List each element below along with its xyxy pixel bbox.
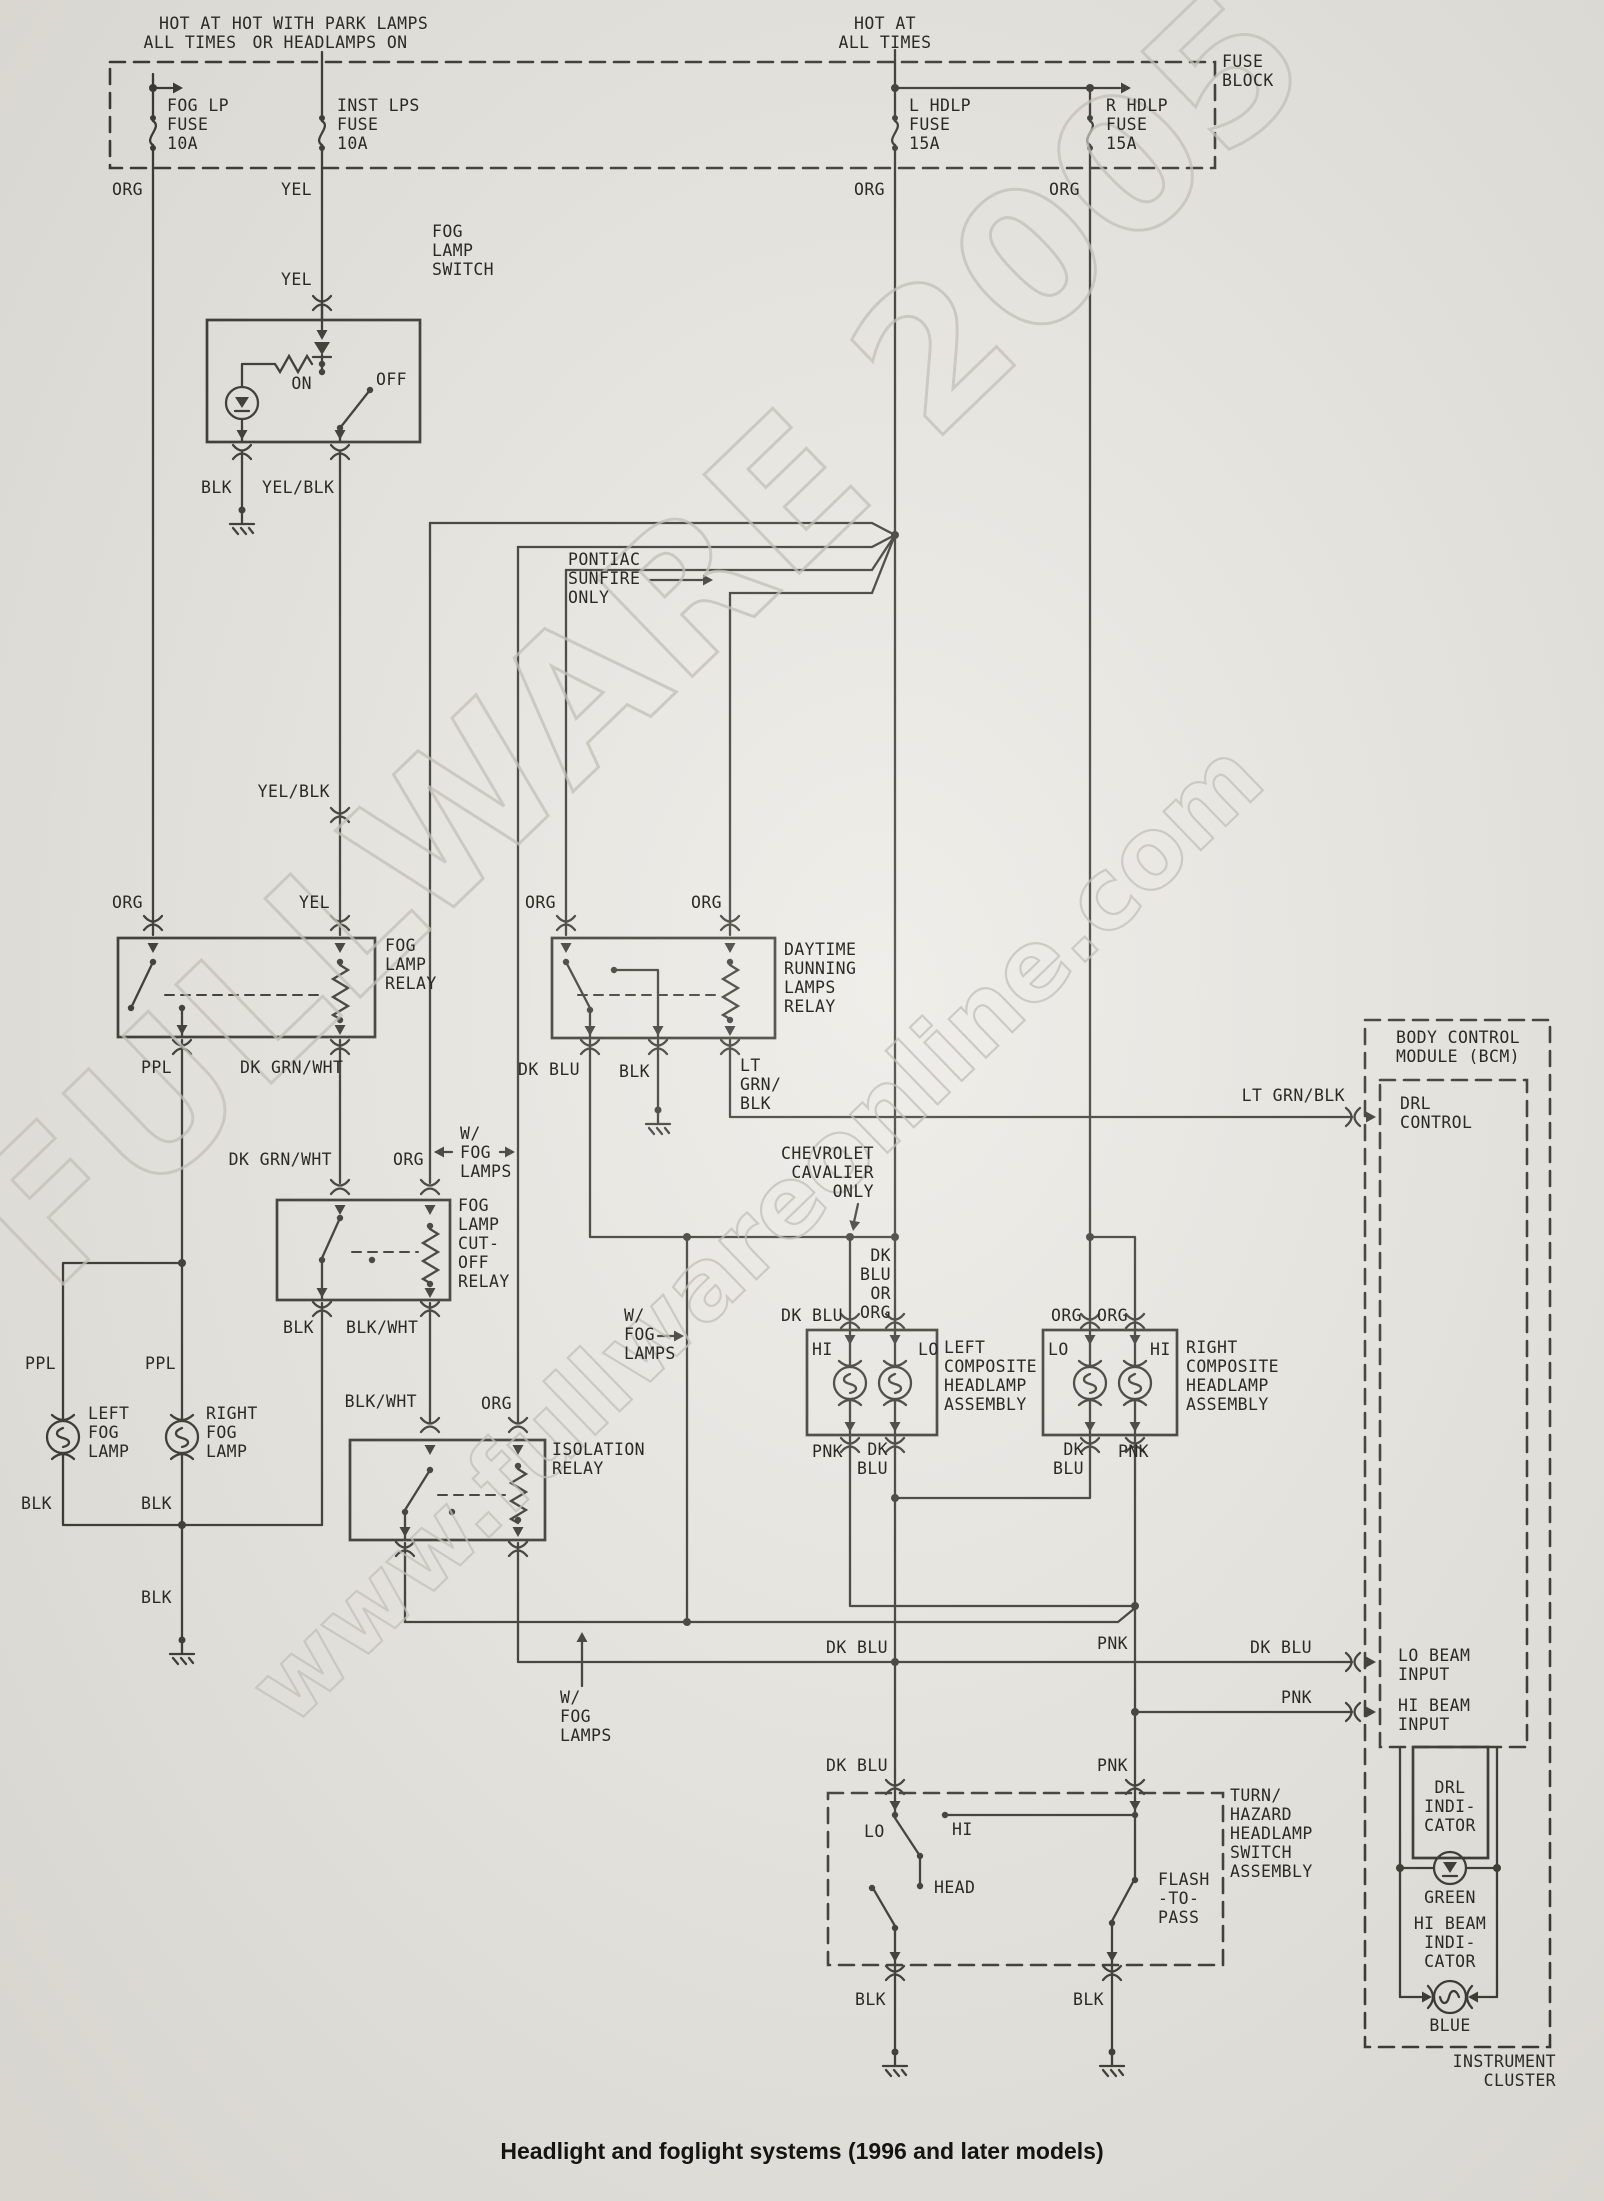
label-lt-grn-blk: LT GRN/BLK — [1242, 1086, 1345, 1105]
label-pnk: PNK — [1281, 1688, 1312, 1707]
label-yel-blk: YEL/BLK — [262, 478, 334, 497]
label-left: LEFT COMPOSITE HEADLAMP ASSEMBLY — [944, 1338, 1037, 1414]
label-blk: BLK — [283, 1318, 314, 1337]
label-blk: BLK — [141, 1494, 172, 1513]
label-right: RIGHT COMPOSITE HEADLAMP ASSEMBLY — [1186, 1338, 1279, 1414]
label-dk-blu: DK BLU — [781, 1306, 843, 1325]
label-lo: LO — [864, 1822, 885, 1841]
label-dk-grn-wht: DK GRN/WHT — [240, 1058, 343, 1077]
label-fog: FOG LAMP CUT- OFF RELAY — [458, 1196, 510, 1291]
left-lo-beam-bulb — [879, 1361, 911, 1405]
label-left: LEFT FOG LAMP — [88, 1404, 129, 1461]
label-fog: FOG LAMP RELAY — [385, 936, 437, 993]
label-hi-beam: HI BEAM INPUT — [1398, 1696, 1470, 1734]
label-w: W/ FOG LAMPS — [460, 1124, 512, 1181]
label-hot-at: HOT AT ALL TIMES — [838, 14, 931, 52]
label-org: ORG — [1049, 180, 1080, 199]
label-blk: BLK — [141, 1588, 172, 1607]
switch-assembly-wiring — [874, 1815, 1135, 2050]
daytime-running-lamps-relay — [552, 938, 775, 1038]
label-lt: LT GRN/ BLK — [740, 1056, 781, 1113]
label-dk-blu: DK BLU — [1250, 1638, 1312, 1657]
label-ppl: PPL — [145, 1354, 176, 1373]
switch-illumination-led — [226, 387, 258, 419]
label-hi: HI — [1150, 1340, 1171, 1359]
hi-beam-indicator-bulb — [1428, 1981, 1472, 2013]
label-l-hdlp: L HDLP FUSE 15A — [909, 96, 971, 153]
right-hi-beam-bulb — [1119, 1361, 1151, 1405]
label-right: RIGHT FOG LAMP — [206, 1404, 258, 1461]
label-w: W/ FOG LAMPS — [624, 1306, 676, 1363]
label-dk-grn-wht: DK GRN/WHT — [229, 1150, 332, 1169]
label-blk-wht: BLK/WHT — [346, 1318, 418, 1337]
label-yel-blk: YEL/BLK — [258, 782, 330, 801]
label-org: ORG — [112, 180, 143, 199]
label-flash: FLASH -TO- PASS — [1158, 1870, 1210, 1927]
label-w: W/ FOG LAMPS — [560, 1688, 612, 1745]
label-body-control: BODY CONTROL MODULE (BCM) — [1396, 1028, 1520, 1066]
label-on: ON — [291, 374, 312, 393]
diagram-caption: Headlight and foglight systems (1996 and… — [0, 2138, 1604, 2165]
label-org: ORG — [854, 180, 885, 199]
label-lo: LO — [1048, 1340, 1069, 1359]
label-pnk: PNK — [1097, 1634, 1128, 1653]
label-org: ORG — [112, 893, 143, 912]
schematic-svg — [0, 0, 1604, 2201]
left-fog-lamp-bulb — [47, 1415, 79, 1459]
label-blk-wht: BLK/WHT — [345, 1392, 417, 1411]
ground-symbols — [170, 507, 1124, 2077]
isolation-relay — [350, 1440, 545, 1540]
label-isolation: ISOLATION RELAY — [552, 1440, 645, 1478]
lamp-symbols — [47, 387, 1472, 2013]
label-org: ORG — [1051, 1306, 1082, 1325]
label-pnk: PNK — [812, 1442, 843, 1461]
label-yel: YEL — [281, 270, 312, 289]
label-blue: BLUE — [1429, 2016, 1470, 2035]
power-feed-wires — [153, 50, 1120, 1423]
label-instrument: INSTRUMENT CLUSTER — [1453, 2052, 1556, 2090]
label-off: OFF — [376, 370, 407, 389]
label-dk: DK BLU — [1053, 1440, 1084, 1478]
label-pnk: PNK — [1118, 1442, 1149, 1461]
label-lo: LO — [918, 1340, 939, 1359]
label-r-hdlp: R HDLP FUSE 15A — [1106, 96, 1168, 153]
label-pnk: PNK — [1097, 1756, 1128, 1775]
label-hi: HI — [812, 1340, 833, 1359]
label-fuse: FUSE BLOCK — [1222, 52, 1274, 90]
label-head: HEAD — [934, 1878, 975, 1897]
fog-lamp-cut-off-relay — [277, 1200, 450, 1300]
label-daytime: DAYTIME RUNNING LAMPS RELAY — [784, 940, 856, 1016]
label-chevrolet: CHEVROLET CAVALIER ONLY — [781, 1144, 874, 1201]
fog-lamp-relay — [118, 938, 375, 1037]
fuse-block — [110, 62, 1215, 168]
label-hot-at: HOT AT ALL TIMES — [143, 14, 236, 52]
label-fog-lp: FOG LP FUSE 10A — [167, 96, 229, 153]
cut-off-relay-wiring — [322, 1218, 430, 1525]
label-inst-lps: INST LPS FUSE 10A — [337, 96, 420, 153]
label-dk: DK BLU OR ORG — [860, 1246, 891, 1322]
scanned-wiring-diagram-page: FULLWARE 2005 www.fullwareonline.com — [0, 0, 1604, 2201]
label-hi-beam: HI BEAM INDI- CATOR — [1414, 1914, 1486, 1971]
label-org: ORG — [691, 893, 722, 912]
label-green: GREEN — [1424, 1888, 1476, 1907]
label-org: ORG — [1097, 1306, 1128, 1325]
label-ppl: PPL — [25, 1354, 56, 1373]
label-yel: YEL — [281, 180, 312, 199]
right-lo-beam-bulb — [1074, 1361, 1106, 1405]
label-org: ORG — [481, 1394, 512, 1413]
label-blk: BLK — [855, 1990, 886, 2009]
label-hot-with-park-lamps: HOT WITH PARK LAMPS OR HEADLAMPS ON — [232, 14, 428, 52]
label-blk: BLK — [1073, 1990, 1104, 2009]
label-lo-beam: LO BEAM INPUT — [1398, 1646, 1470, 1684]
label-dk-blu: DK BLU — [826, 1638, 888, 1657]
label-org: ORG — [393, 1150, 424, 1169]
label-fog: FOG LAMP SWITCH — [432, 222, 494, 279]
isolation-relay-wiring — [405, 1470, 1352, 1662]
right-fog-lamp-bulb — [166, 1415, 198, 1459]
headlamp-wiring — [850, 1237, 1352, 1880]
label-pontiac: PONTIAC SUNFIRE ONLY — [568, 550, 640, 607]
label-blk: BLK — [201, 478, 232, 497]
drl-relay-wiring — [566, 962, 1352, 1622]
label-dk-blu: DK BLU — [518, 1060, 580, 1079]
label-drl: DRL CONTROL — [1400, 1094, 1472, 1132]
terminal-arrows — [148, 330, 1141, 1962]
label-yel: YEL — [299, 893, 330, 912]
label-drl: DRL INDI- CATOR — [1424, 1778, 1476, 1835]
label-blk: BLK — [21, 1494, 52, 1513]
label-hi: HI — [952, 1820, 973, 1839]
label-blk: BLK — [619, 1062, 650, 1081]
label-org: ORG — [525, 893, 556, 912]
label-turn: TURN/ HAZARD HEADLAMP SWITCH ASSEMBLY — [1230, 1786, 1313, 1881]
label-dk-blu: DK BLU — [826, 1756, 888, 1775]
label-ppl: PPL — [141, 1058, 172, 1077]
left-hi-beam-bulb — [834, 1361, 866, 1405]
fog-lamp-switch-wiring — [242, 306, 370, 935]
annotation-arrows — [153, 83, 1478, 2003]
connector-symbols — [144, 296, 1360, 1980]
label-dk: DK BLU — [857, 1440, 888, 1478]
